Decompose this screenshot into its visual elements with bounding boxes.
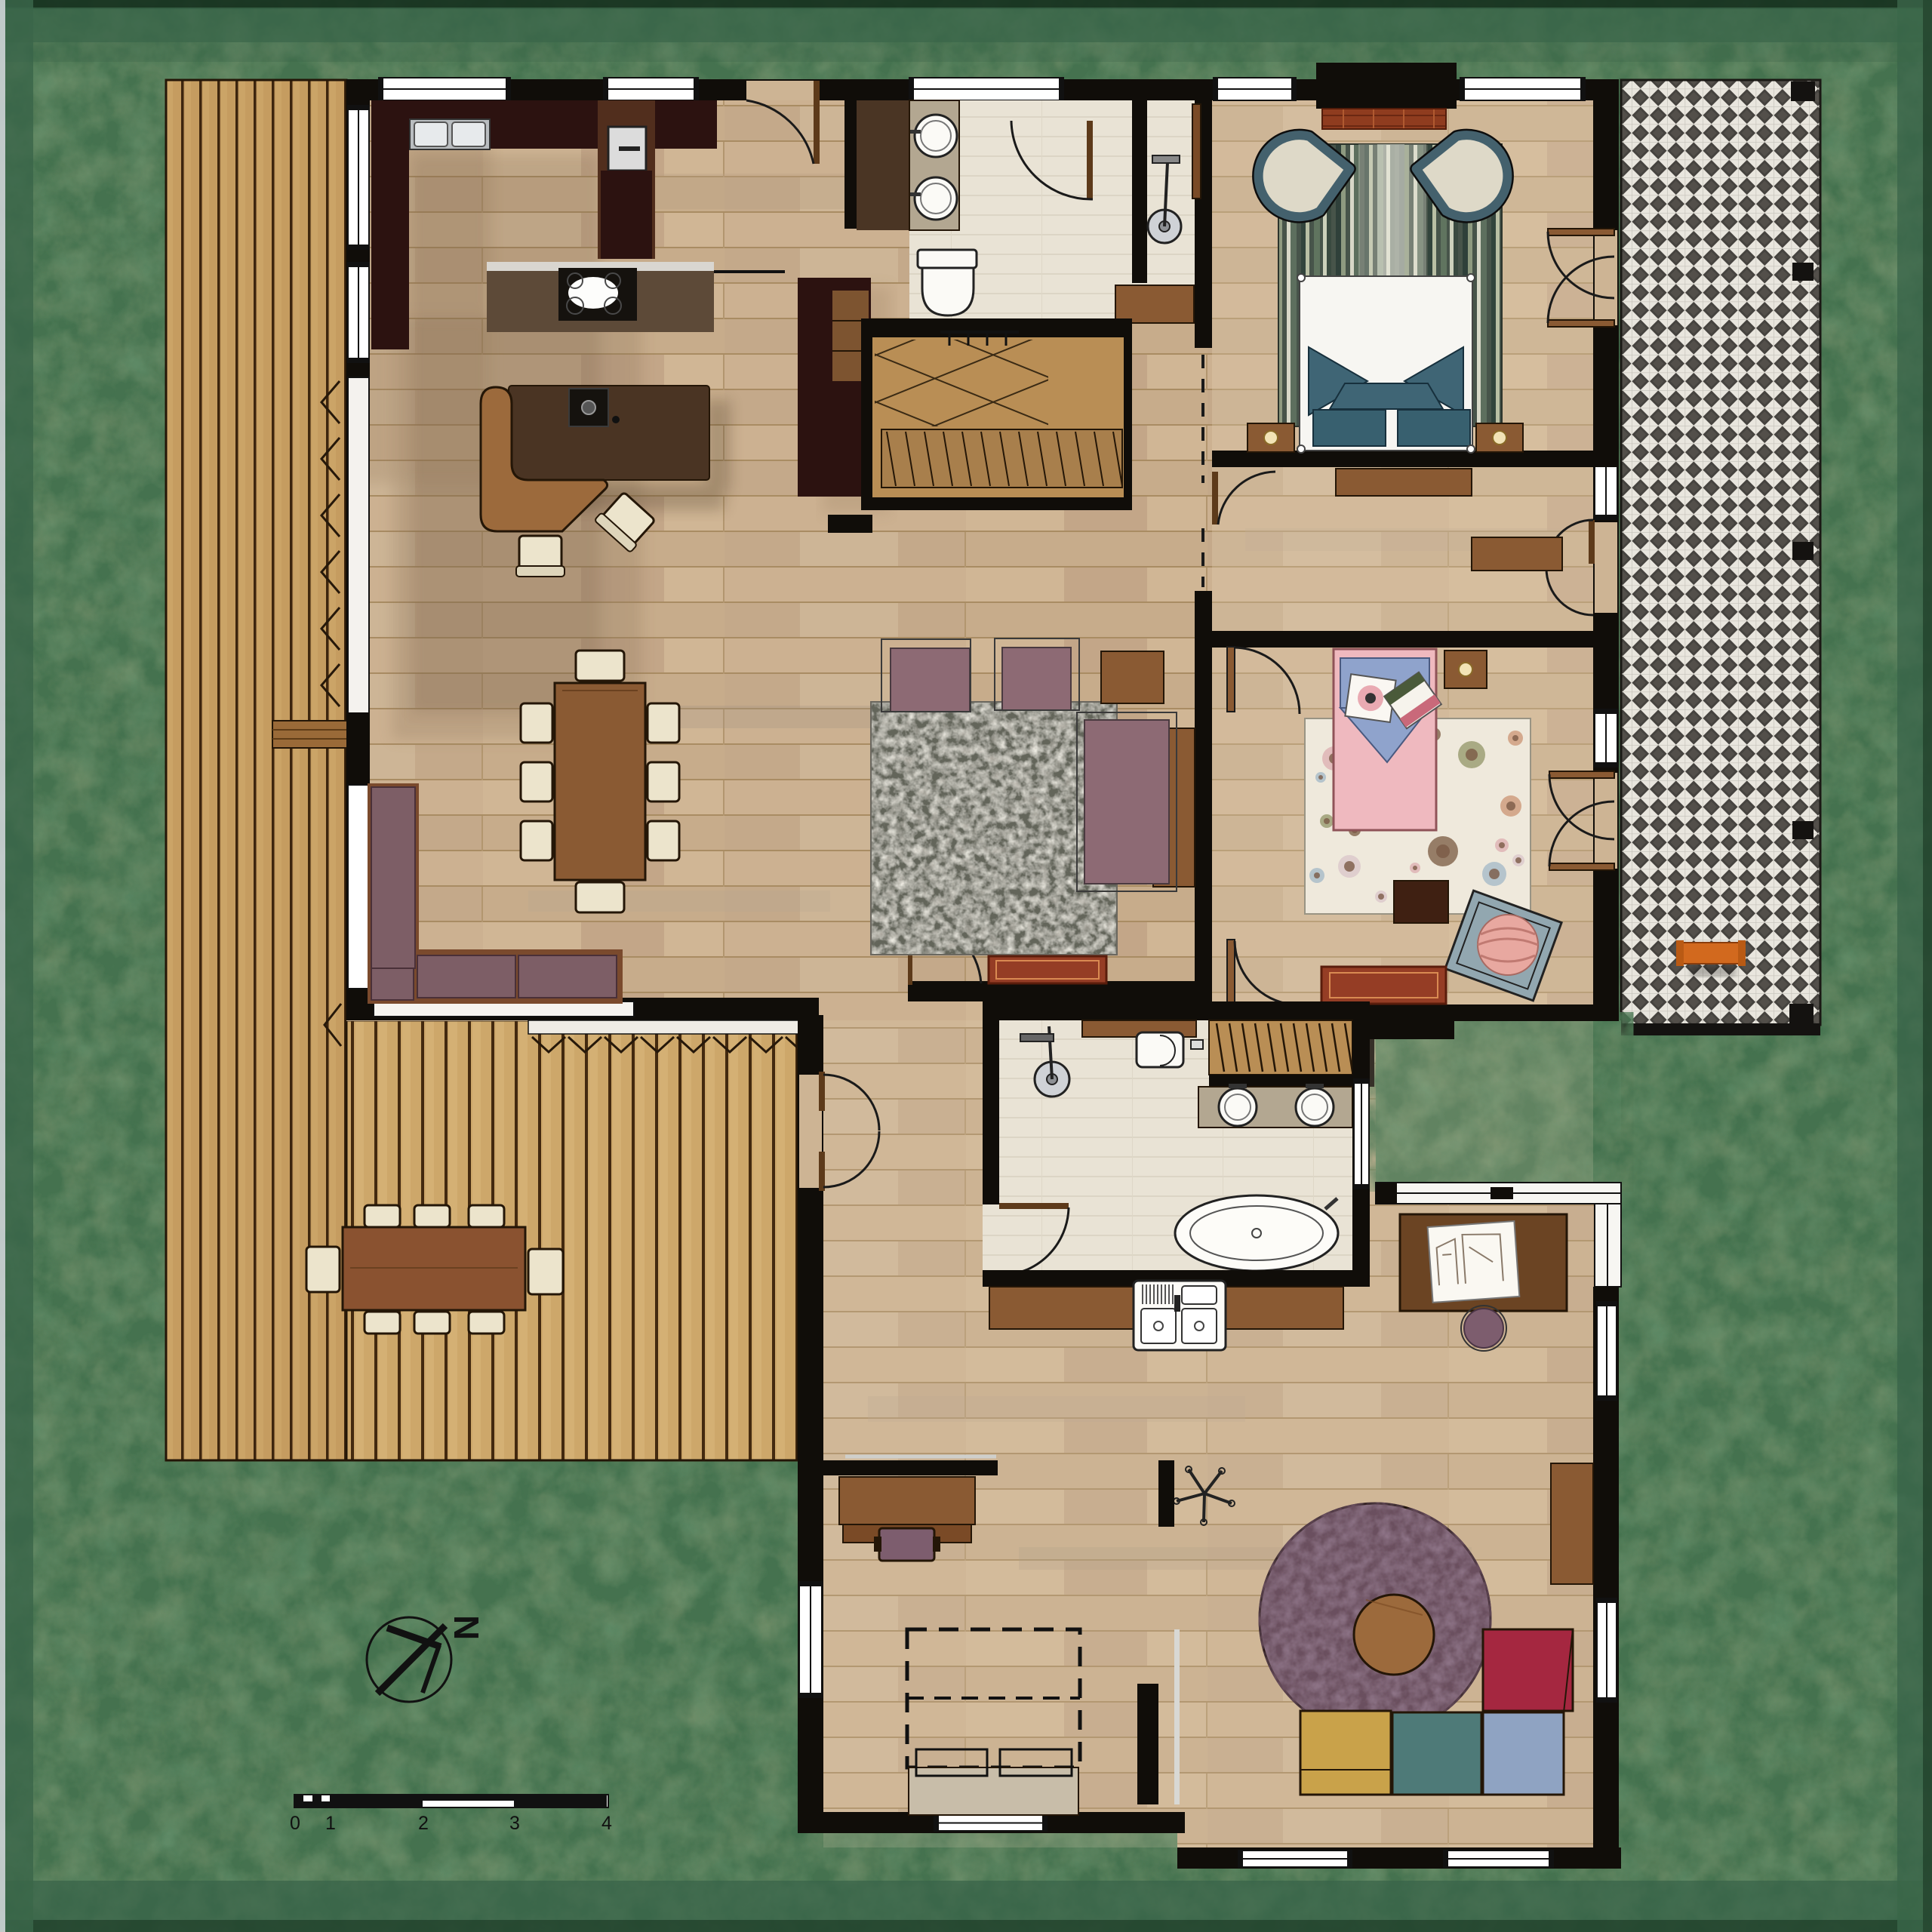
svg-text:2: 2 [418, 1813, 429, 1834]
svg-text:4: 4 [601, 1813, 612, 1834]
svg-text:3: 3 [509, 1813, 520, 1834]
svg-text:0: 0 [290, 1813, 300, 1834]
svg-text:1: 1 [325, 1813, 336, 1834]
svg-text:N: N [447, 1615, 486, 1640]
